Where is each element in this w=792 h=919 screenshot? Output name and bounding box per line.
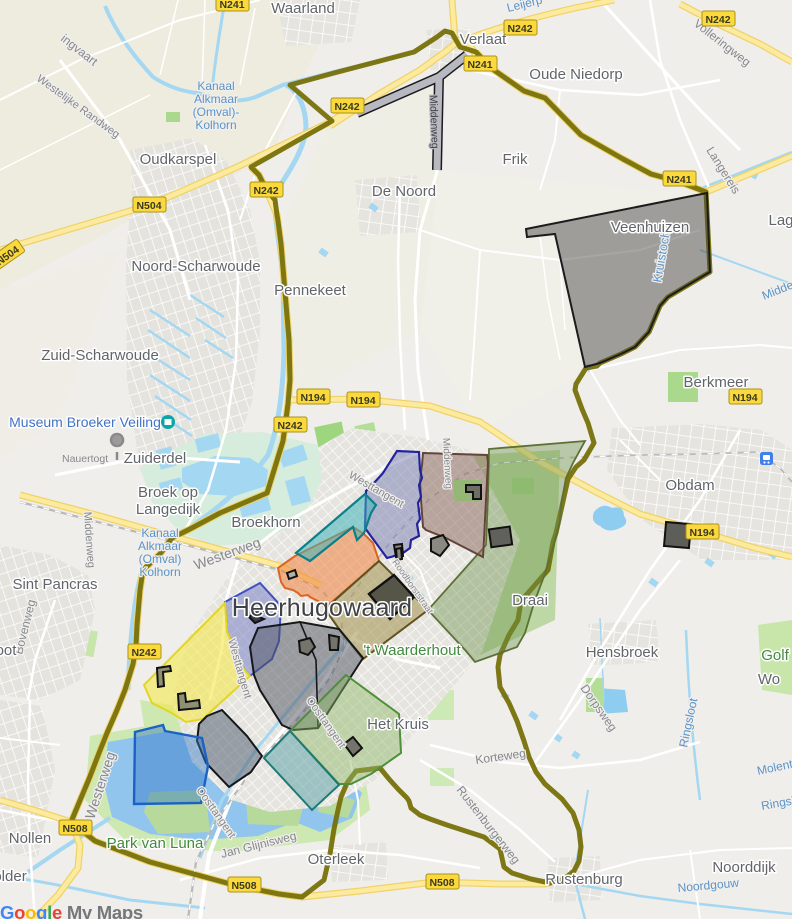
svg-text:Oude Niedorp: Oude Niedorp xyxy=(529,66,622,83)
svg-text:Google My Maps: Google My Maps xyxy=(0,902,143,919)
svg-text:Nollen: Nollen xyxy=(9,830,52,847)
svg-text:Oterleek: Oterleek xyxy=(308,851,365,868)
svg-text:Obdam: Obdam xyxy=(665,477,714,494)
svg-text:Wo: Wo xyxy=(758,671,780,688)
svg-text:Waarland: Waarland xyxy=(271,0,335,17)
svg-text:N241: N241 xyxy=(467,59,492,71)
svg-text:N508: N508 xyxy=(429,877,454,889)
svg-text:Sint Pancras: Sint Pancras xyxy=(12,576,97,593)
svg-text:oot: oot xyxy=(0,642,17,659)
svg-text:Pennekeet: Pennekeet xyxy=(274,282,347,299)
svg-text:N242: N242 xyxy=(705,14,730,26)
svg-text:older: older xyxy=(0,868,27,885)
svg-text:Veenhuizen: Veenhuizen xyxy=(611,219,689,236)
svg-text:Noorddijk: Noorddijk xyxy=(712,859,776,876)
svg-text:Heerhugowaard: Heerhugowaard xyxy=(232,594,413,622)
svg-text:Draai: Draai xyxy=(512,592,548,609)
svg-text:Zuid-Scharwoude: Zuid-Scharwoude xyxy=(41,347,159,364)
svg-text:N194: N194 xyxy=(732,392,757,404)
svg-text:Kolhorn: Kolhorn xyxy=(139,565,180,579)
svg-text:Golf: Golf xyxy=(761,647,789,664)
svg-text:Frik: Frik xyxy=(503,151,528,168)
svg-text:(Omval): (Omval) xyxy=(139,552,182,566)
svg-text:Langedijk: Langedijk xyxy=(136,501,201,518)
svg-text:N242: N242 xyxy=(334,101,359,113)
svg-text:Park van Luna: Park van Luna xyxy=(107,835,204,852)
svg-text:Broekhorn: Broekhorn xyxy=(231,514,300,531)
svg-text:N504: N504 xyxy=(136,200,161,212)
svg-text:(Omval)-: (Omval)- xyxy=(193,105,240,119)
svg-text:Zuiderdel: Zuiderdel xyxy=(124,450,187,467)
svg-text:N508: N508 xyxy=(62,823,87,835)
svg-text:Hensbroek: Hensbroek xyxy=(586,644,659,661)
svg-text:Het Kruis: Het Kruis xyxy=(367,716,429,733)
svg-text:Nauertogt: Nauertogt xyxy=(62,453,108,465)
svg-text:Oudkarspel: Oudkarspel xyxy=(140,151,217,168)
svg-text:N242: N242 xyxy=(131,647,156,659)
svg-text:N194: N194 xyxy=(300,392,325,404)
svg-text:N194: N194 xyxy=(350,395,375,407)
svg-text:N194: N194 xyxy=(689,527,714,539)
svg-text:N508: N508 xyxy=(231,880,256,892)
svg-text:Noord-Scharwoude: Noord-Scharwoude xyxy=(131,258,260,275)
svg-text:Broek op: Broek op xyxy=(138,484,198,501)
svg-text:N241: N241 xyxy=(666,174,691,186)
svg-text:N241: N241 xyxy=(219,0,244,11)
svg-text:Alkmaar: Alkmaar xyxy=(194,92,238,106)
svg-text:N242: N242 xyxy=(507,23,532,35)
svg-text:Kanaal: Kanaal xyxy=(141,526,178,540)
svg-text:'t Waarderhout: 't Waarderhout xyxy=(363,642,461,659)
svg-text:Alkmaar: Alkmaar xyxy=(138,539,182,553)
svg-text:Berkmeer: Berkmeer xyxy=(683,374,748,391)
svg-text:Kolhorn: Kolhorn xyxy=(195,118,236,132)
svg-text:Museum Broeker Veiling: Museum Broeker Veiling xyxy=(9,414,161,430)
svg-text:Rustenburg: Rustenburg xyxy=(545,871,623,888)
svg-text:Lag: Lag xyxy=(768,212,792,229)
svg-text:Middenweg: Middenweg xyxy=(427,95,441,149)
svg-text:Kanaal: Kanaal xyxy=(197,79,234,93)
svg-text:N242: N242 xyxy=(253,185,278,197)
svg-text:De Noord: De Noord xyxy=(372,183,436,200)
svg-text:N242: N242 xyxy=(277,420,302,432)
svg-text:Verlaat: Verlaat xyxy=(460,31,508,48)
